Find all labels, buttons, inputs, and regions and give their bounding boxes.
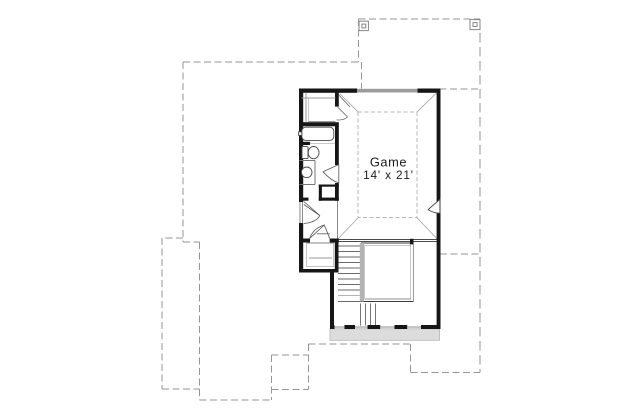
svg-text:Game: Game	[370, 154, 407, 169]
svg-text:14' x 21': 14' x 21'	[363, 168, 414, 182]
